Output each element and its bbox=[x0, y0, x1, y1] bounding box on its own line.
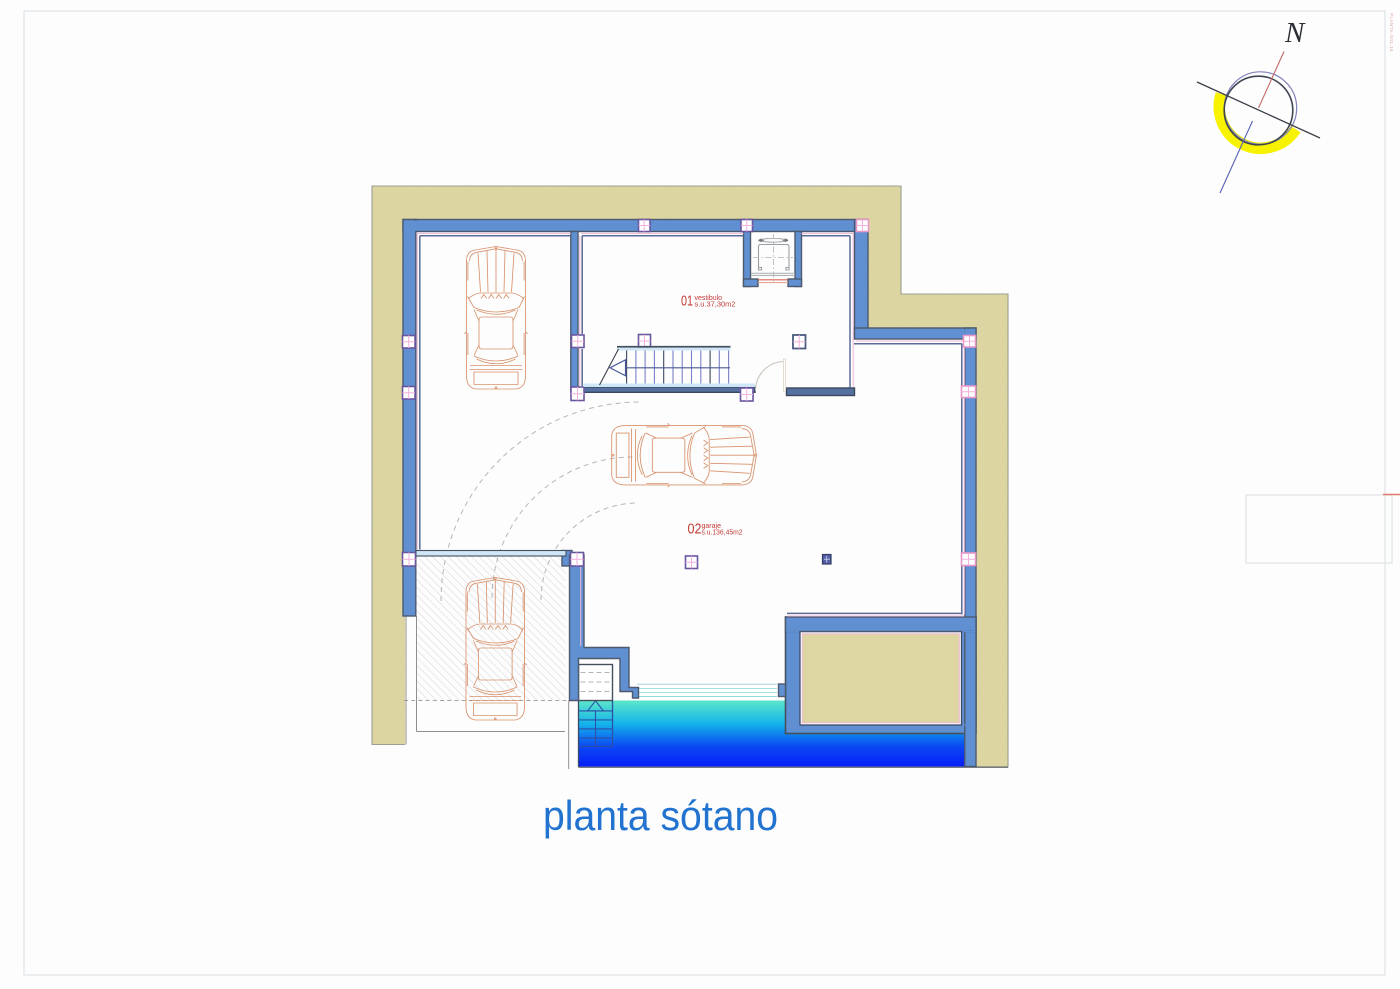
svg-text:01: 01 bbox=[681, 294, 693, 310]
svg-text:s.u.37,30m2: s.u.37,30m2 bbox=[695, 300, 736, 309]
svg-text:planta sótano: planta sótano bbox=[543, 792, 778, 839]
svg-text:N: N bbox=[1284, 17, 1306, 49]
svg-text:PLANTA-S01.16: PLANTA-S01.16 bbox=[1389, 13, 1394, 52]
svg-text:02: 02 bbox=[688, 522, 702, 538]
svg-text:s.u.136,45m2: s.u.136,45m2 bbox=[702, 528, 743, 537]
